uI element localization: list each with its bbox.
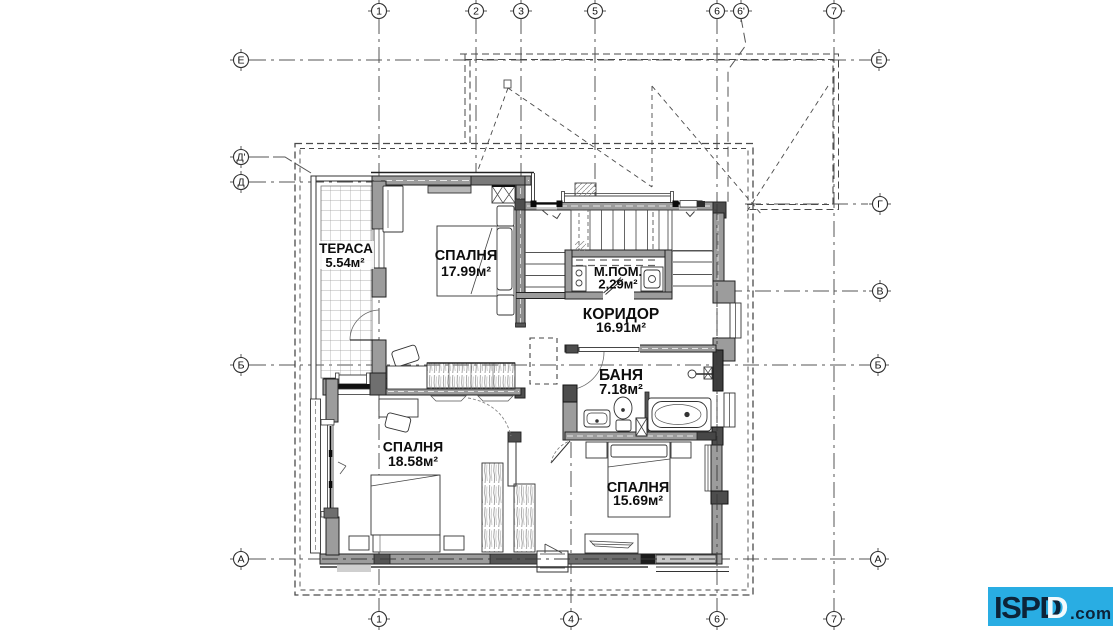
- svg-text:2,29м²: 2,29м²: [598, 277, 638, 292]
- svg-text:5.54м²: 5.54м²: [325, 255, 365, 270]
- svg-text:А: А: [874, 554, 881, 566]
- svg-text:Б: Б: [238, 360, 245, 372]
- svg-text:1: 1: [376, 6, 382, 18]
- svg-text:СПАЛНЯ: СПАЛНЯ: [435, 248, 498, 264]
- svg-text:16.91м²: 16.91м²: [596, 319, 646, 335]
- svg-text:В: В: [876, 286, 883, 298]
- svg-text:15.69м²: 15.69м²: [613, 492, 663, 508]
- svg-text:17.99м²: 17.99м²: [441, 263, 491, 279]
- svg-text:Д': Д': [236, 152, 245, 164]
- svg-text:Б: Б: [875, 360, 882, 372]
- svg-text:D: D: [1046, 590, 1068, 625]
- svg-text:Е: Е: [237, 55, 244, 67]
- svg-text:4: 4: [568, 614, 574, 626]
- svg-text:6: 6: [714, 614, 720, 626]
- svg-text:18.58м²: 18.58м²: [388, 453, 438, 469]
- svg-text:7: 7: [831, 6, 837, 18]
- svg-text:6': 6': [737, 6, 745, 18]
- svg-text:2: 2: [473, 6, 479, 18]
- svg-text:.com: .com: [1070, 604, 1112, 623]
- svg-text:ТЕРАСА: ТЕРАСА: [319, 241, 373, 256]
- svg-text:1: 1: [376, 614, 382, 626]
- svg-text:6: 6: [714, 6, 720, 18]
- svg-text:7.18м²: 7.18м²: [599, 382, 643, 398]
- svg-text:5: 5: [592, 6, 598, 18]
- svg-text:Г: Г: [877, 199, 883, 211]
- svg-text:Е: Е: [875, 55, 882, 67]
- svg-text:А: А: [237, 554, 244, 566]
- svg-text:Д: Д: [237, 177, 244, 189]
- svg-text:7: 7: [831, 614, 837, 626]
- svg-text:3: 3: [518, 6, 524, 18]
